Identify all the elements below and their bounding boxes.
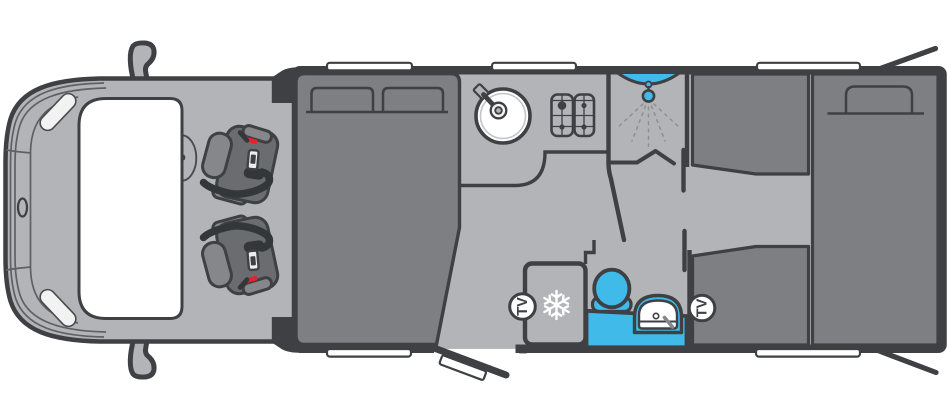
svg-text:TV: TV <box>695 298 711 317</box>
svg-text:TV: TV <box>515 297 531 316</box>
